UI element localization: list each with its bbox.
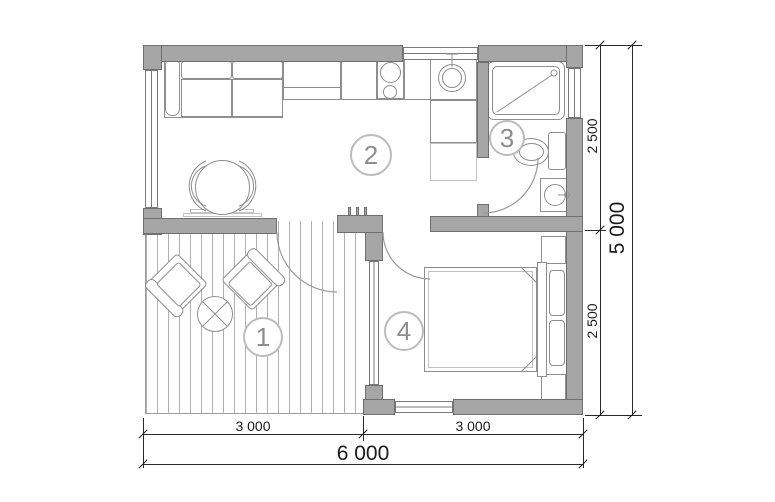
terrace-deck-door-patch: [278, 221, 336, 234]
wall-top-left: [143, 45, 403, 62]
shower-tray-inner: [492, 66, 560, 115]
window-divider-glass: [369, 261, 379, 385]
wall-bottom-right-segment: [453, 399, 583, 415]
counter-divider: [404, 58, 405, 99]
kitchen-counter-return-low: [430, 143, 477, 181]
kitchen-cabinet-shelf-line: [284, 87, 340, 88]
dimension-line-right-outer: [632, 45, 633, 415]
bed-pillow-bottom: [549, 320, 565, 366]
bedside-table-bottom: [541, 374, 566, 400]
room-label-terrace: 1: [243, 317, 283, 357]
room-number: 1: [256, 322, 270, 353]
dim-right-total: 5 000: [606, 202, 630, 255]
bedside-table-top: [541, 236, 566, 264]
window-bathroom: [568, 68, 581, 118]
wall-right-main: [566, 118, 583, 415]
dining-table: [195, 160, 250, 215]
wall-bathroom-left: [477, 62, 489, 158]
room-number: 3: [500, 123, 514, 154]
sofa-back-cushion-left: [181, 61, 232, 79]
dim-right-upper: 2 500: [584, 118, 600, 153]
room-label-bathroom: 3: [489, 120, 525, 156]
door-arc-bedroom: [383, 232, 430, 279]
floor-plan: 1 2 3 4 2 500 2 500 5 000 3 000 3 000 6 …: [0, 0, 775, 502]
stove-burner-large: [380, 62, 401, 83]
door-hinge-mark: [348, 207, 351, 216]
counter-divider: [430, 58, 431, 99]
stove-burner-small: [383, 85, 397, 99]
wall-divider-stub: [365, 232, 383, 261]
sofa-back-cushion-right: [232, 61, 283, 79]
extension-line: [585, 45, 642, 46]
room-number: 4: [397, 316, 411, 347]
wall-middle-door-pier: [337, 215, 383, 233]
extension-line: [363, 416, 364, 441]
dim-bottom-total: 6 000: [323, 442, 403, 466]
sofa-seat-left: [181, 79, 232, 117]
bed-pillow-top: [549, 270, 565, 316]
bed-blanket: [428, 271, 533, 368]
wall-left-upper-block: [143, 45, 162, 70]
room-label-living-kitchen: 2: [350, 134, 392, 176]
door-hinge-mark: [364, 207, 367, 216]
sofa-armrest-left: [165, 58, 180, 116]
room-number: 2: [364, 140, 378, 171]
toilet-tank: [548, 132, 566, 170]
door-arc-bathroom: [483, 158, 538, 213]
bed-headboard: [537, 262, 547, 377]
window-left: [145, 70, 158, 208]
wall-bottom-left-segment: [363, 399, 395, 415]
window-bedroom: [395, 401, 453, 413]
wall-right-upper: [566, 45, 583, 68]
wall-middle-left: [143, 218, 277, 234]
extension-line: [585, 415, 642, 416]
terrace-table: [197, 296, 233, 332]
window-kitchen: [403, 47, 478, 60]
door-hinge-mark: [356, 207, 359, 216]
extension-line: [585, 230, 606, 231]
dim-bottom-left: 3 000: [223, 418, 283, 434]
wall-middle-right: [430, 216, 583, 232]
dim-right-lower: 2 500: [584, 303, 600, 338]
kitchen-counter-return: [430, 100, 477, 143]
kitchen-cabinet: [283, 57, 341, 100]
sofa-seat-right: [232, 79, 283, 117]
room-label-bedroom: 4: [384, 311, 424, 351]
washbasin: [544, 184, 566, 206]
dim-bottom-right: 3 000: [443, 418, 503, 434]
kitchen-sink-basin: [442, 68, 462, 88]
